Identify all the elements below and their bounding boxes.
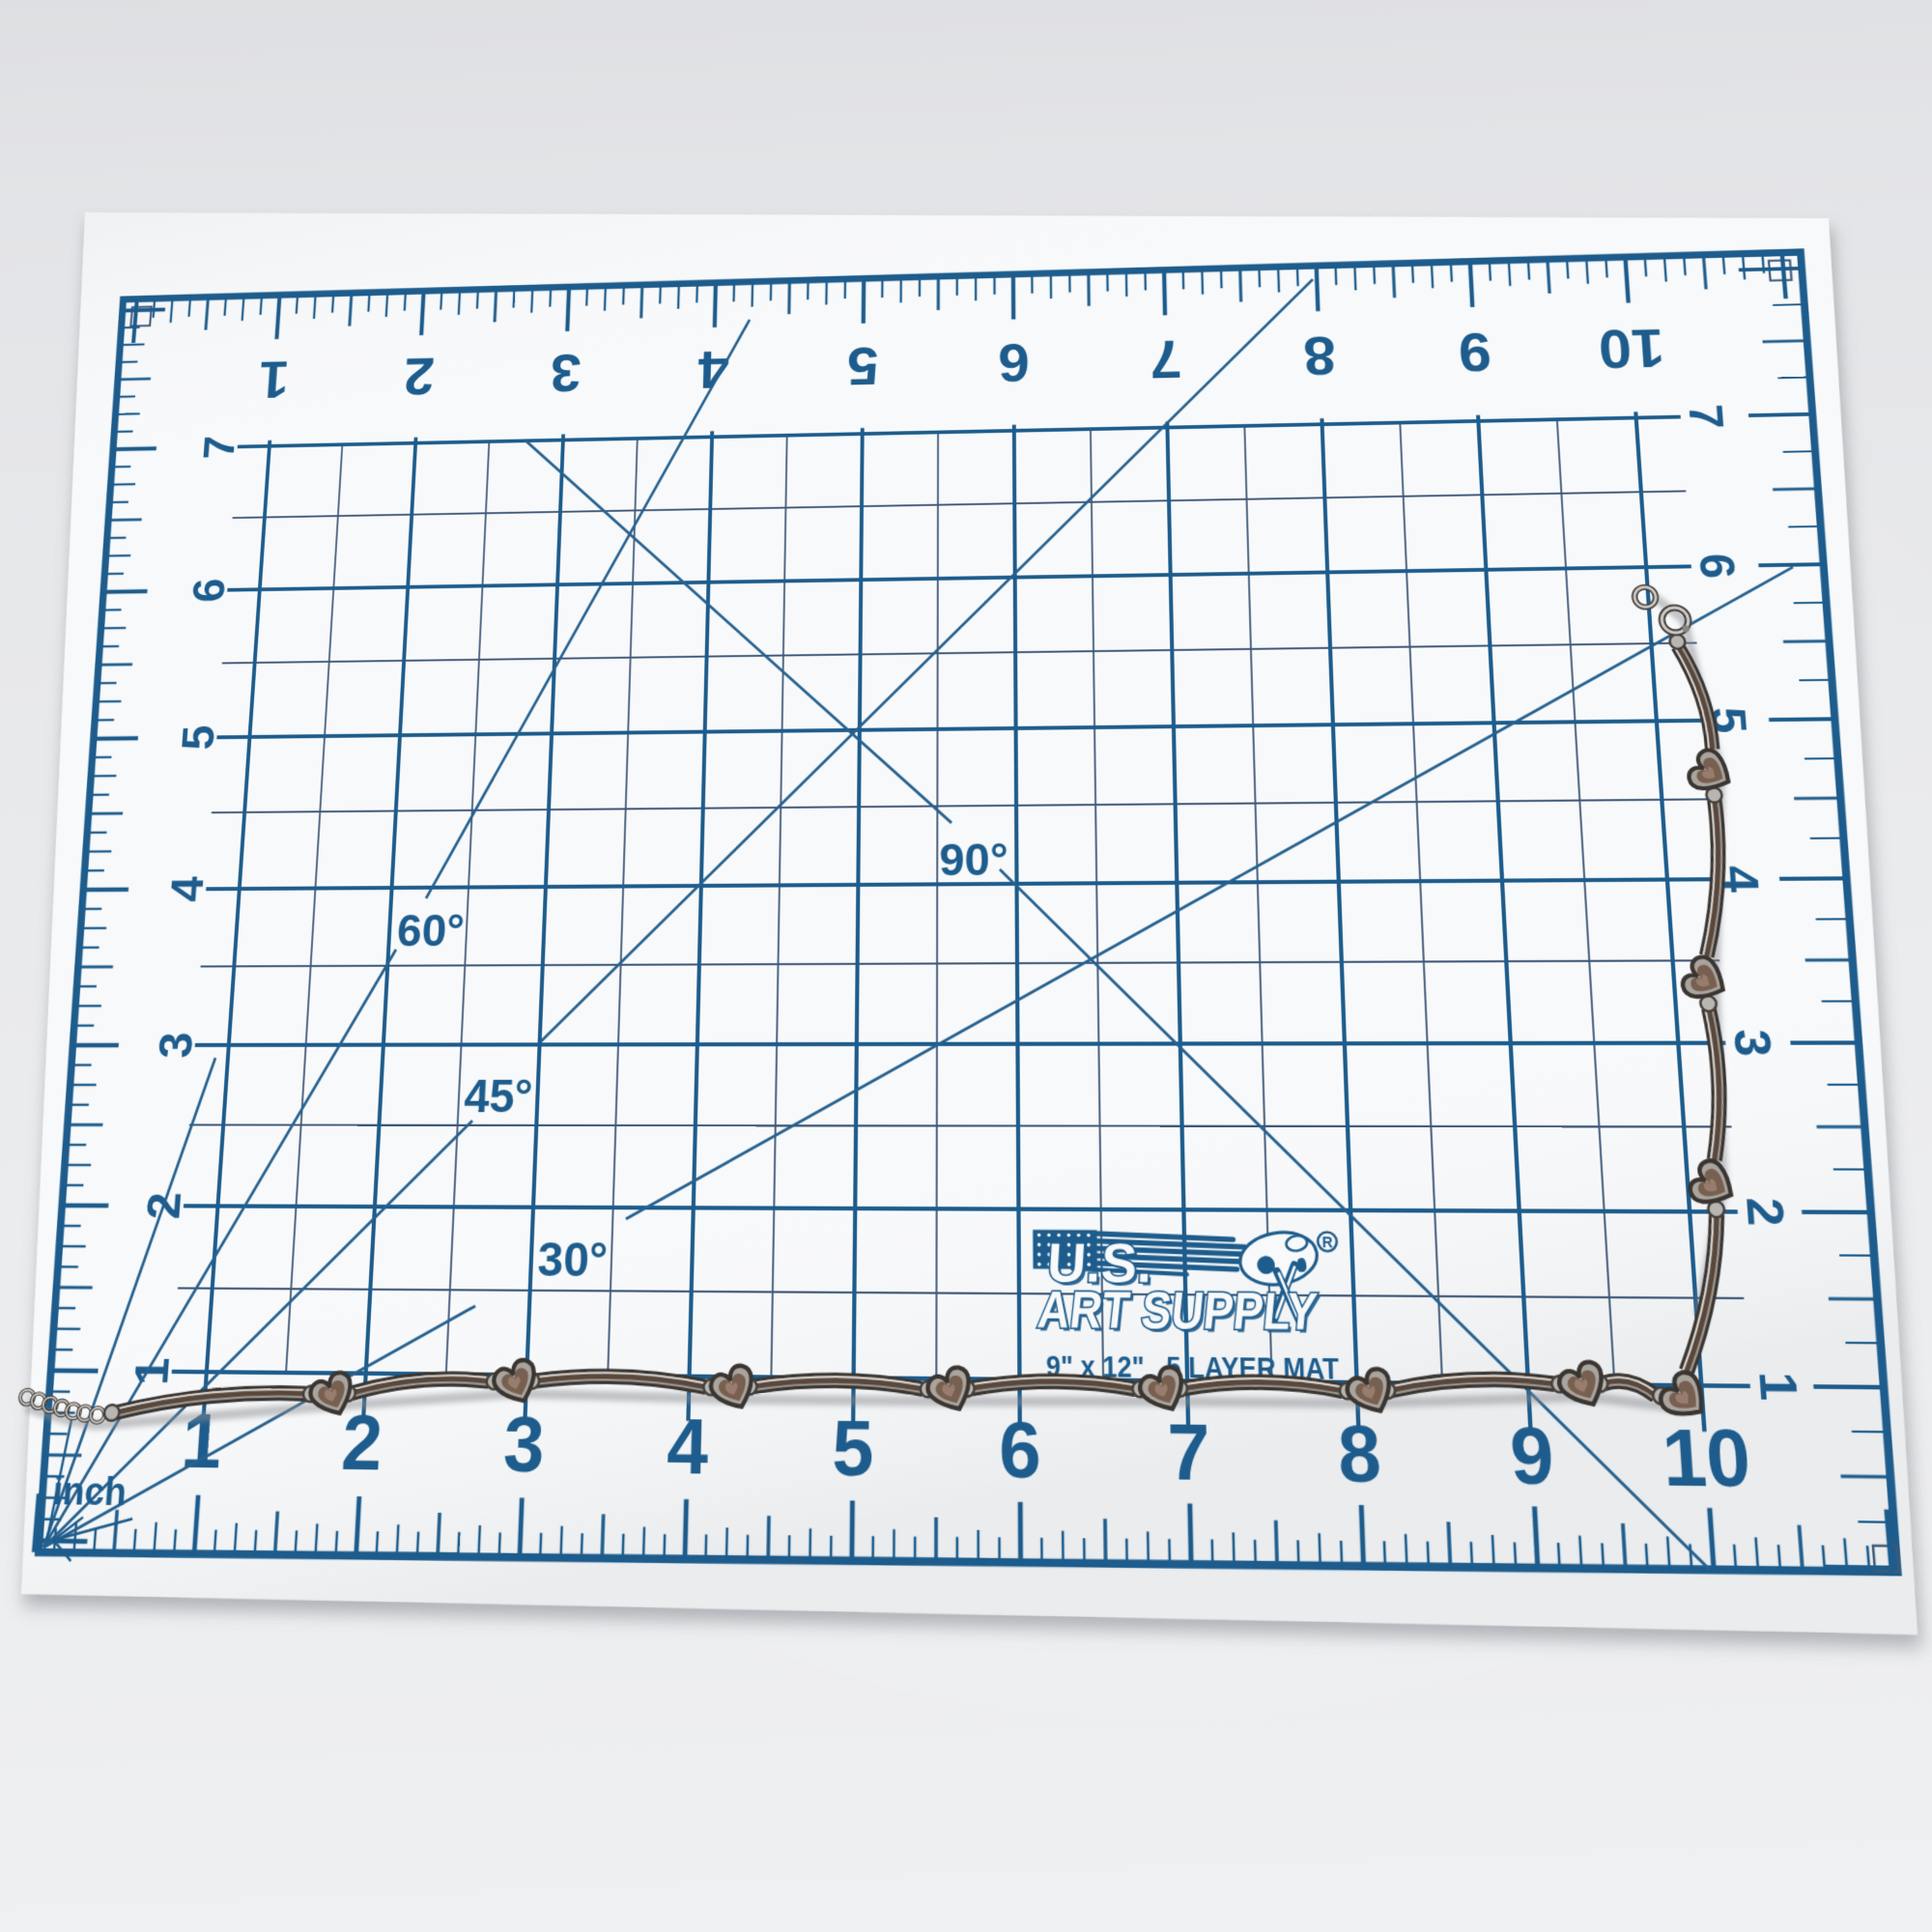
- svg-text:4: 4: [161, 876, 214, 902]
- svg-text:60°: 60°: [396, 905, 466, 956]
- svg-text:45°: 45°: [463, 1069, 533, 1122]
- svg-text:10: 10: [1597, 317, 1666, 379]
- svg-text:3: 3: [550, 343, 582, 402]
- svg-text:5: 5: [847, 335, 879, 395]
- svg-text:9: 9: [1508, 1411, 1556, 1502]
- svg-text:5: 5: [173, 724, 225, 750]
- svg-text:inch: inch: [51, 1469, 128, 1514]
- svg-text:2: 2: [403, 346, 437, 405]
- svg-text:4: 4: [697, 339, 730, 398]
- svg-text:8: 8: [1337, 1409, 1383, 1499]
- svg-text:ART SUPPLY: ART SUPPLY: [1035, 1281, 1319, 1341]
- svg-text:6: 6: [184, 578, 235, 603]
- svg-text:2: 2: [1735, 1198, 1795, 1227]
- svg-text:6: 6: [998, 332, 1030, 392]
- svg-text:7: 7: [1150, 328, 1182, 388]
- svg-text:6: 6: [1689, 553, 1745, 579]
- svg-text:8: 8: [1302, 325, 1337, 384]
- svg-text:5: 5: [832, 1405, 874, 1493]
- svg-text:3: 3: [502, 1401, 547, 1489]
- svg-text:90°: 90°: [939, 835, 1009, 886]
- svg-text:9: 9: [1457, 321, 1492, 382]
- svg-text:R: R: [1321, 1235, 1333, 1251]
- svg-text:7: 7: [194, 435, 244, 459]
- svg-text:3: 3: [1722, 1029, 1781, 1057]
- svg-text:7: 7: [1167, 1407, 1211, 1497]
- svg-text:1: 1: [1747, 1372, 1807, 1402]
- svg-text:4: 4: [666, 1403, 709, 1491]
- svg-text:30°: 30°: [537, 1232, 609, 1286]
- svg-text:10: 10: [1660, 1412, 1753, 1504]
- svg-text:7: 7: [1678, 404, 1733, 430]
- svg-text:3: 3: [150, 1032, 204, 1058]
- svg-text:6: 6: [999, 1406, 1041, 1494]
- svg-text:1: 1: [257, 350, 291, 409]
- svg-text:2: 2: [340, 1400, 385, 1487]
